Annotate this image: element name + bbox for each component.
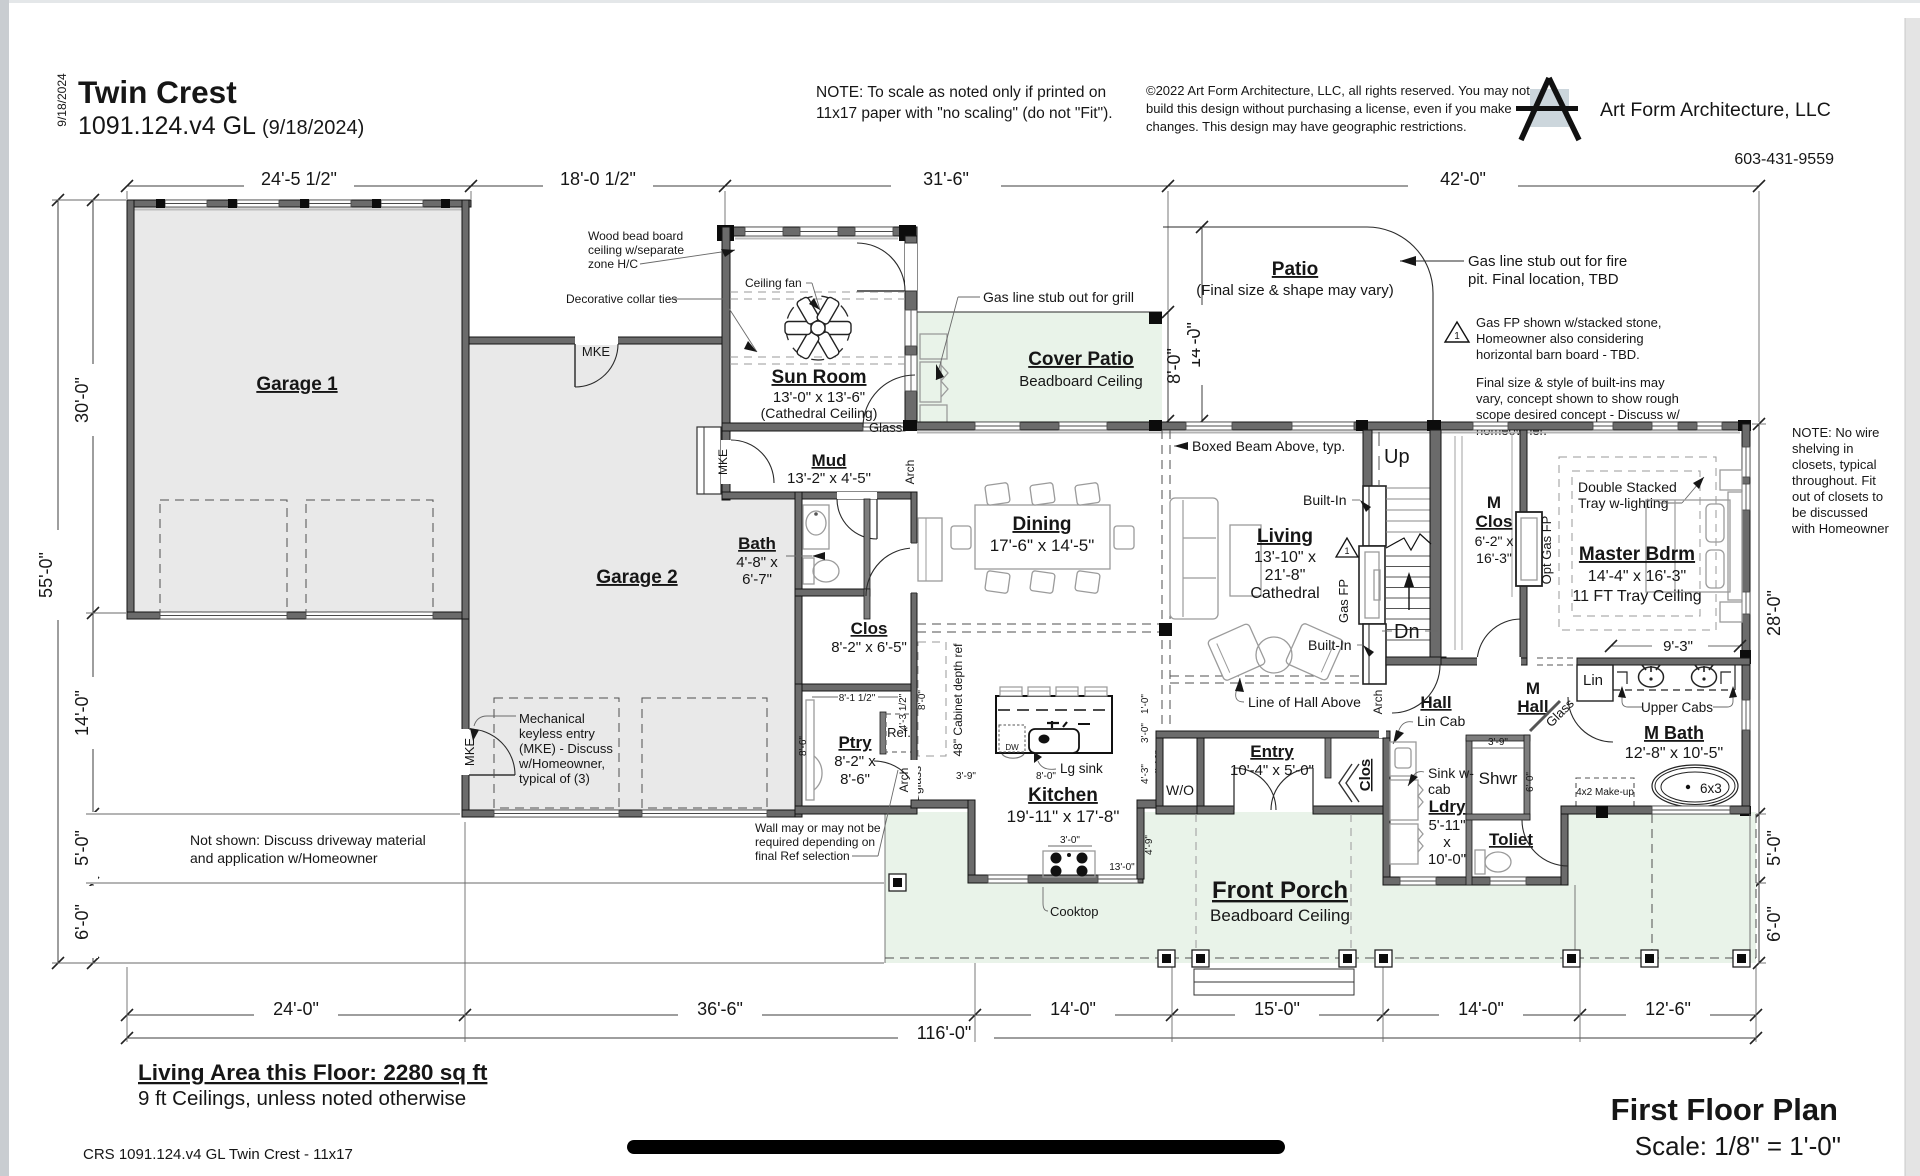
svg-text:M Bath: M Bath	[1644, 723, 1704, 743]
svg-text:and application w/Homeowner: and application w/Homeowner	[190, 850, 378, 866]
svg-text:Gas FP shown w/stacked stone,: Gas FP shown w/stacked stone,	[1476, 315, 1661, 330]
svg-text:DW: DW	[1005, 743, 1019, 752]
svg-text:3'-0": 3'-0"	[1140, 723, 1151, 743]
svg-text:9 ft Ceilings, unless noted ot: 9 ft Ceilings, unless noted otherwise	[138, 1087, 466, 1110]
svg-text:Entry: Entry	[1250, 742, 1294, 761]
svg-text:MKE: MKE	[582, 344, 611, 359]
svg-text:Opt Gas FP: Opt Gas FP	[1539, 516, 1554, 585]
svg-text:keyless entry: keyless entry	[519, 726, 595, 741]
svg-text:603-431-9559: 603-431-9559	[1734, 151, 1834, 168]
svg-text:Clos: Clos	[851, 619, 888, 638]
svg-text:Sun Room: Sun Room	[772, 367, 867, 388]
svg-text:17'-6" x 14'-5": 17'-6" x 14'-5"	[990, 536, 1095, 555]
svg-text:out of closets to: out of closets to	[1792, 489, 1883, 504]
svg-text:Homeowner also considering: Homeowner also considering	[1476, 331, 1644, 346]
svg-text:Garage 2: Garage 2	[596, 567, 677, 588]
svg-text:MKE: MKE	[462, 738, 477, 767]
svg-text:6'-0": 6'-0"	[1764, 906, 1784, 942]
svg-text:Ldry: Ldry	[1429, 797, 1466, 816]
svg-text:Beadboard Ceiling: Beadboard Ceiling	[1210, 906, 1350, 925]
svg-text:6'-7": 6'-7"	[742, 571, 772, 588]
svg-text:14'-0": 14'-0"	[1458, 999, 1504, 1019]
svg-text:5'-11": 5'-11"	[1428, 817, 1465, 834]
svg-text:Line of Hall Above: Line of Hall Above	[1248, 694, 1361, 710]
svg-text:16'-3": 16'-3"	[1476, 550, 1512, 566]
svg-text:final Ref selection: final Ref selection	[755, 849, 850, 863]
svg-text:Upper Cabs: Upper Cabs	[1641, 700, 1713, 715]
svg-text:24'-5 1/2": 24'-5 1/2"	[261, 169, 337, 189]
svg-text:12'-6": 12'-6"	[1645, 999, 1691, 1019]
svg-text:Bath: Bath	[738, 534, 776, 553]
svg-text:scope desired concept - Discus: scope desired concept - Discuss w/	[1476, 407, 1680, 422]
svg-text:116'-0": 116'-0"	[917, 1023, 972, 1043]
svg-text:4'-3": 4'-3"	[1140, 764, 1151, 784]
svg-text:©2022 Art Form Architecture, L: ©2022 Art Form Architecture, LLC, all ri…	[1146, 83, 1530, 98]
svg-text:Scale: 1/8" = 1'-0": Scale: 1/8" = 1'-0"	[1635, 1131, 1841, 1161]
svg-text:Arch: Arch	[903, 460, 917, 485]
svg-text:W/O: W/O	[1166, 782, 1194, 798]
svg-text:w/Homeowner,: w/Homeowner,	[518, 756, 605, 771]
svg-text:15'-0": 15'-0"	[1254, 999, 1300, 1019]
svg-text:6x3: 6x3	[1700, 781, 1722, 796]
svg-text:21'-8": 21'-8"	[1265, 567, 1306, 584]
svg-text:8'-6": 8'-6"	[840, 771, 870, 788]
svg-text:Tray w-lighting: Tray w-lighting	[1578, 495, 1669, 511]
svg-text:cab: cab	[1428, 781, 1451, 797]
svg-text:1'-0": 1'-0"	[1140, 694, 1151, 714]
svg-text:4'-8" x: 4'-8" x	[736, 554, 778, 571]
svg-text:NOTE: To scale as noted only i: NOTE: To scale as noted only if printed …	[816, 84, 1106, 101]
svg-text:Boxed Beam Above, typ.: Boxed Beam Above, typ.	[1192, 438, 1345, 454]
svg-text:Decorative collar ties: Decorative collar ties	[566, 292, 677, 306]
svg-text:(MKE) - Discuss: (MKE) - Discuss	[519, 741, 613, 756]
svg-text:(9/18/2024): (9/18/2024)	[262, 117, 364, 139]
svg-text:Front Porch: Front Porch	[1212, 877, 1348, 904]
svg-text:typical of (3): typical of (3)	[519, 771, 590, 786]
svg-text:5'-0": 5'-0"	[1764, 830, 1784, 866]
svg-text:Hall: Hall	[1517, 697, 1548, 716]
svg-text:42'-0": 42'-0"	[1440, 169, 1486, 189]
svg-text:horizontal barn board - TBD.: horizontal barn board - TBD.	[1476, 347, 1640, 362]
svg-text:Mud: Mud	[812, 451, 847, 470]
svg-text:1: 1	[1344, 546, 1349, 556]
svg-text:Gas FP: Gas FP	[1336, 579, 1351, 623]
svg-text:13'-10" x: 13'-10" x	[1254, 549, 1316, 566]
svg-text:8'-0": 8'-0"	[1036, 771, 1056, 782]
svg-text:throughout. Fit: throughout. Fit	[1792, 473, 1876, 488]
svg-text:Garage 1: Garage 1	[256, 374, 338, 395]
svg-text:6'-0": 6'-0"	[1525, 772, 1536, 792]
svg-text:1: 1	[1454, 331, 1460, 342]
svg-text:18'-0 1/2": 18'-0 1/2"	[560, 169, 636, 189]
svg-text:Ceiling fan: Ceiling fan	[745, 276, 802, 290]
svg-text:Ptry: Ptry	[838, 733, 872, 752]
svg-text:Master Bdrm: Master Bdrm	[1579, 544, 1695, 565]
svg-text:build this design without purc: build this design without purchasing a l…	[1146, 101, 1512, 116]
svg-text:Twin Crest: Twin Crest	[78, 74, 237, 110]
svg-text:28'-0": 28'-0"	[1764, 590, 1784, 636]
svg-text:9'-3": 9'-3"	[1663, 638, 1693, 655]
svg-text:31'-6": 31'-6"	[923, 169, 969, 189]
svg-text:8'-2" x: 8'-2" x	[834, 753, 876, 770]
svg-text:10'-4" x 5'-0": 10'-4" x 5'-0"	[1230, 762, 1314, 779]
svg-text:pit. Final location, TBD: pit. Final location, TBD	[1468, 271, 1619, 288]
svg-text:Gas line stub out for grill: Gas line stub out for grill	[983, 289, 1134, 305]
svg-text:zone H/C: zone H/C	[588, 257, 638, 271]
svg-text:3'-9": 3'-9"	[956, 771, 976, 782]
svg-text:vary, concept shown to show ro: vary, concept shown to show rough	[1476, 391, 1679, 406]
svg-text:Clos: Clos	[1357, 759, 1374, 792]
svg-text:Shwr: Shwr	[1479, 769, 1518, 788]
svg-text:12'-8" x 10'-5": 12'-8" x 10'-5"	[1625, 745, 1723, 762]
svg-text:MKE: MKE	[716, 449, 730, 475]
svg-text:36'-6": 36'-6"	[697, 999, 743, 1019]
svg-text:CRS 1091.124.v4 GL Twin Crest: CRS 1091.124.v4 GL Twin Crest - 11x17	[83, 1146, 353, 1163]
svg-text:Patio: Patio	[1272, 259, 1318, 280]
svg-text:Living: Living	[1257, 526, 1313, 547]
svg-text:M: M	[1526, 679, 1540, 698]
svg-text:13'-0" x 13'-6": 13'-0" x 13'-6"	[773, 389, 865, 406]
svg-text:with Homeowner: with Homeowner	[1791, 521, 1889, 536]
svg-text:Hall: Hall	[1420, 693, 1451, 712]
svg-text:Cooktop: Cooktop	[1050, 904, 1098, 919]
svg-text:NOTE: No wire: NOTE: No wire	[1792, 425, 1879, 440]
svg-text:13'-0": 13'-0"	[1109, 862, 1135, 873]
svg-text:Arch: Arch	[1371, 690, 1385, 715]
svg-text:1091.124.v4 GL: 1091.124.v4 GL	[78, 112, 256, 140]
svg-text:Dn: Dn	[1394, 621, 1420, 643]
svg-text:14'-0": 14'-0"	[1050, 999, 1096, 1019]
svg-text:Lin: Lin	[1583, 672, 1603, 689]
svg-text:6'-2" x: 6'-2" x	[1475, 533, 1514, 549]
svg-text:Lin Cab: Lin Cab	[1417, 713, 1465, 729]
svg-text:Built-In: Built-In	[1308, 637, 1352, 653]
svg-text:Up: Up	[1384, 446, 1410, 468]
svg-text:4x2 Make-up: 4x2 Make-up	[1576, 787, 1634, 798]
svg-text:48" Cabinet depth ref: 48" Cabinet depth ref	[951, 643, 965, 757]
svg-text:5'-0": 5'-0"	[72, 830, 92, 866]
svg-text:M: M	[1487, 493, 1501, 512]
svg-text:4'-9": 4'-9"	[1144, 835, 1155, 855]
svg-text:Living Area this Floor: 2280 s: Living Area this Floor: 2280 sq ft	[138, 1060, 488, 1085]
svg-text:8'-0": 8'-0"	[917, 690, 928, 710]
svg-text:24'-0": 24'-0"	[273, 999, 319, 1019]
svg-text:Double Stacked: Double Stacked	[1578, 479, 1677, 495]
svg-text:8'-0": 8'-0"	[1164, 348, 1184, 384]
svg-text:Cover Patio: Cover Patio	[1028, 349, 1134, 370]
svg-text:x: x	[1443, 834, 1451, 851]
svg-text:Gas line stub out for fire: Gas line stub out for fire	[1468, 253, 1627, 270]
svg-text:closets, typical: closets, typical	[1792, 457, 1877, 472]
svg-text:ceiling w/separate: ceiling w/separate	[588, 243, 684, 257]
svg-text:8'-6": 8'-6"	[798, 736, 809, 756]
svg-text:(Final size & shape may vary): (Final size & shape may vary)	[1196, 282, 1394, 299]
svg-text:(Cathedral Ceiling): (Cathedral Ceiling)	[761, 405, 878, 421]
svg-text:Wood bead board: Wood bead board	[588, 229, 683, 243]
svg-text:required depending on: required depending on	[755, 835, 875, 849]
svg-text:6'-0": 6'-0"	[72, 904, 92, 940]
svg-text:Glass: Glass	[869, 420, 903, 435]
svg-text:14'-0": 14'-0"	[72, 690, 92, 736]
svg-text:3'-0": 3'-0"	[1060, 835, 1080, 846]
svg-text:14'-4" x 16'-3": 14'-4" x 16'-3"	[1588, 568, 1686, 585]
svg-text:Clos: Clos	[1476, 512, 1513, 531]
svg-text:be discussed: be discussed	[1792, 505, 1868, 520]
svg-text:Cathedral: Cathedral	[1250, 585, 1319, 602]
svg-text:Mechanical: Mechanical	[519, 711, 585, 726]
svg-text:shelving in: shelving in	[1792, 441, 1853, 456]
svg-text:Kitchen: Kitchen	[1028, 785, 1098, 806]
svg-text:First Floor Plan: First Floor Plan	[1611, 1092, 1838, 1127]
svg-text:30'-0": 30'-0"	[72, 377, 92, 423]
svg-text:3'-9": 3'-9"	[1488, 737, 1508, 748]
svg-text:Built-In: Built-In	[1303, 492, 1347, 508]
svg-text:19'-11" x 17'-8": 19'-11" x 17'-8"	[1007, 807, 1120, 826]
svg-text:Art Form Architecture, LLC: Art Form Architecture, LLC	[1600, 99, 1831, 121]
svg-text:10'-0": 10'-0"	[1428, 851, 1466, 868]
svg-text:Wall may or may not be: Wall may or may not be	[755, 821, 881, 835]
svg-text:8'-2" x 6'-5": 8'-2" x 6'-5"	[831, 639, 907, 656]
svg-text:Beadboard Ceiling: Beadboard Ceiling	[1019, 373, 1142, 390]
svg-text:Dining: Dining	[1012, 514, 1071, 535]
svg-text:changes. This design may have: changes. This design may have geographic…	[1146, 119, 1467, 134]
svg-text:8'-1 1/2": 8'-1 1/2"	[839, 693, 876, 704]
svg-text:13'-2" x 4'-5": 13'-2" x 4'-5"	[787, 470, 871, 487]
svg-text:Lg sink: Lg sink	[1060, 761, 1103, 776]
svg-text:9/18/2024: 9/18/2024	[55, 73, 69, 127]
svg-text:11 FT Tray Ceiling: 11 FT Tray Ceiling	[1572, 588, 1701, 605]
svg-text:Arch: Arch	[897, 768, 911, 793]
svg-text:4'-3 1/2": 4'-3 1/2"	[898, 693, 909, 730]
svg-text:Final size & style of built-in: Final size & style of built-ins may	[1476, 375, 1665, 390]
svg-text:55'-0": 55'-0"	[36, 552, 56, 598]
svg-text:11x17 paper with "no scaling": 11x17 paper with "no scaling" (do not "F…	[816, 105, 1113, 122]
svg-text:Not shown: Discuss driveway ma: Not shown: Discuss driveway material	[190, 832, 426, 848]
svg-text:Sink w-: Sink w-	[1428, 765, 1474, 781]
